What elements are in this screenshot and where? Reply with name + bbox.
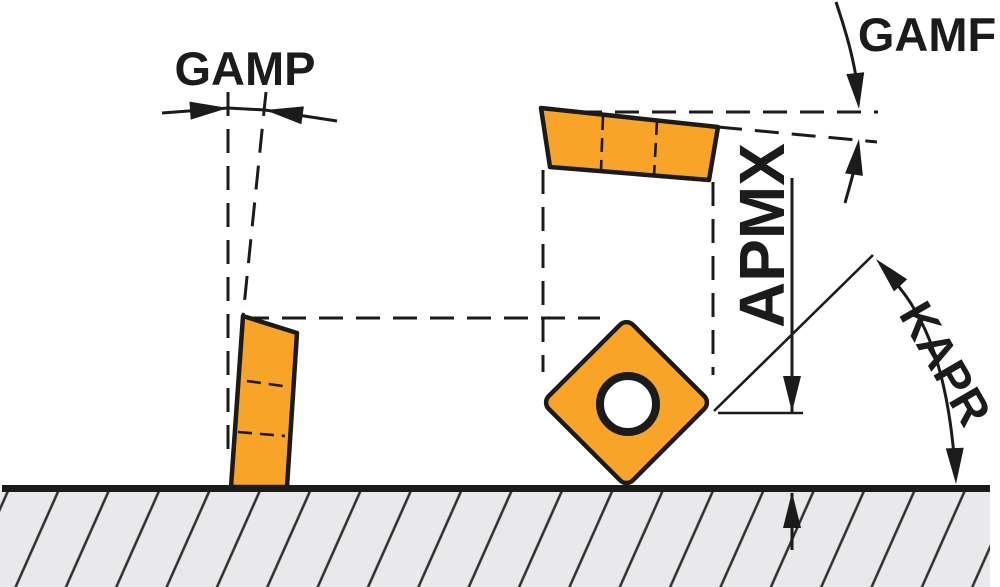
- gamp-dimension-line: [162, 108, 337, 121]
- insert-center-hole: [600, 376, 656, 432]
- left-insert-body: [231, 316, 297, 487]
- left-insert: [231, 316, 297, 487]
- insert-geometry-diagram: GAMP GAMF APMX KAPR: [0, 0, 1000, 587]
- gamp-right-arrowhead-icon: [264, 101, 304, 124]
- gamp-left-arrowhead-icon: [189, 99, 228, 120]
- gamf-up-arrowhead-icon: [845, 138, 868, 176]
- diagram-canvas: GAMP GAMF APMX KAPR: [0, 0, 1000, 587]
- workpiece-hatch: [0, 490, 990, 587]
- workpiece-surface-line: [2, 485, 990, 492]
- top-insert: [541, 108, 718, 180]
- gamp-tilted-edge-dashed-line: [243, 92, 266, 316]
- kapr-lower-arrowhead-icon: [946, 448, 965, 485]
- gamf-label: GAMF: [858, 8, 996, 61]
- diamond-insert: [542, 318, 710, 486]
- apmx-down-arrowhead-icon: [783, 376, 801, 412]
- kapr-label: KAPR: [889, 293, 1000, 435]
- kapr-upper-arrowhead-icon: [869, 253, 907, 292]
- gamf-tilted-edge-dashed-line: [718, 127, 877, 142]
- gamp-label: GAMP: [175, 42, 316, 95]
- apmx-label: APMX: [726, 143, 798, 328]
- gamf-down-arrowhead-icon: [846, 72, 868, 110]
- workpiece: [0, 485, 990, 587]
- top-insert-body: [541, 108, 718, 180]
